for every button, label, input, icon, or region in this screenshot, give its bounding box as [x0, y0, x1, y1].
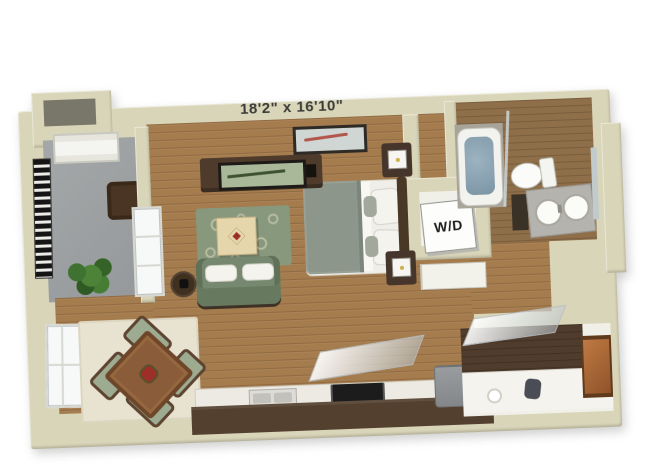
console-art-streak	[227, 169, 285, 178]
floorplan-canvas: W/D	[0, 0, 650, 468]
sofa-pillow-left	[205, 264, 238, 282]
tv-console	[200, 154, 323, 193]
double-vanity	[526, 183, 597, 238]
sofa	[196, 256, 282, 307]
copper-shelf	[581, 335, 613, 398]
closet-door	[420, 262, 487, 291]
console-art-frame	[218, 159, 307, 190]
dining-centerpiece	[140, 365, 158, 383]
sink-basin-right	[274, 392, 292, 403]
cube-lamp-bottom	[392, 258, 412, 278]
side-table-item	[179, 279, 188, 288]
living-window	[131, 206, 164, 297]
bathtub	[457, 127, 504, 207]
vanity-sink-right	[561, 193, 591, 223]
art-stroke	[304, 133, 348, 142]
counter-bowl	[487, 388, 503, 404]
bed-accent-pillow-top	[363, 196, 377, 217]
nightstand-bottom	[385, 250, 416, 285]
sofa-pillow-right	[242, 263, 275, 281]
nightstand-top	[381, 142, 412, 177]
balcony-parapet-opening	[43, 99, 96, 127]
bed-wall-art	[293, 124, 368, 155]
sink-basin-left	[253, 393, 271, 404]
balcony-railing	[33, 158, 54, 278]
cube-lamp-top	[387, 150, 407, 170]
floorplan: W/D	[3, 70, 637, 468]
bathtub-water	[464, 136, 495, 195]
toilet-tank	[538, 157, 557, 189]
coffee-table	[216, 216, 257, 256]
counter-bag	[524, 378, 542, 400]
vanity-faucets	[557, 205, 562, 213]
balcony-door	[53, 132, 120, 165]
bed-accent-pillow-bottom	[365, 236, 379, 257]
bed-blanket	[303, 180, 364, 274]
console-item	[306, 164, 316, 177]
table-ornament	[228, 228, 245, 245]
